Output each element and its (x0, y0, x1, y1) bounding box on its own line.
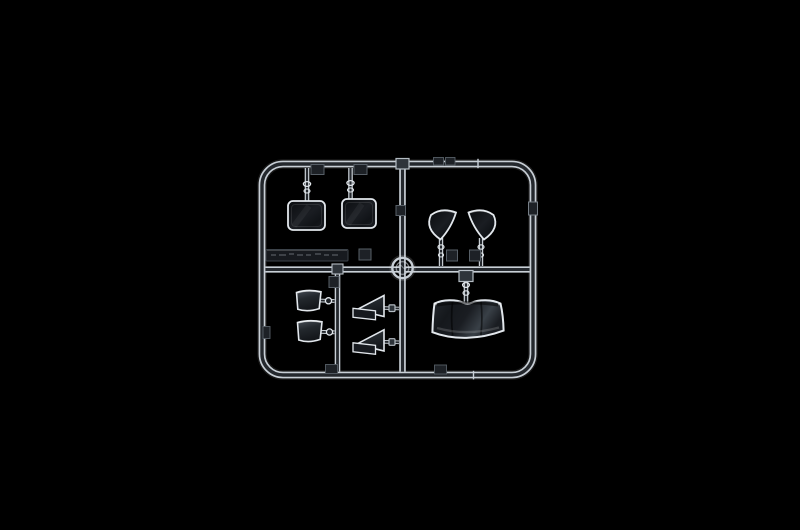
gate-tab (359, 249, 371, 260)
gate-tab (470, 250, 481, 261)
rear-window-right-assembly (342, 165, 376, 229)
gate-tab (311, 165, 324, 175)
molded-text-plate (266, 249, 371, 261)
runner-gate-tab (329, 277, 339, 288)
gate-tab (434, 158, 444, 166)
specular-glint (434, 303, 437, 306)
sprue-collar (389, 305, 395, 312)
runner-junction-plate-top (396, 159, 409, 170)
side-glass-upper (297, 290, 322, 310)
side-glass-upper-assembly (297, 290, 335, 310)
gate-tab (354, 165, 367, 175)
specular-glint (498, 303, 501, 306)
photo-canvas (0, 0, 800, 530)
rear-window-left-assembly (288, 165, 325, 231)
gate-tab (446, 158, 456, 166)
quarter-light-right (469, 210, 496, 239)
runner-junction-plate-mid (332, 264, 343, 274)
vertical-runner-inner (329, 264, 343, 372)
gate-tab (263, 327, 270, 339)
side-glass-lower (298, 321, 323, 342)
quarter-light-left-assembly (429, 210, 457, 266)
gate-tab (529, 202, 538, 215)
gate-tab (459, 271, 473, 282)
sprue-collar (325, 298, 331, 304)
runner-gate-tab (396, 206, 406, 216)
sprue-collar (389, 339, 395, 346)
sprue-collar (326, 329, 332, 335)
vent-window-upper-assembly (353, 296, 399, 320)
vertical-runner-main (396, 159, 409, 372)
quarter-light-right-assembly (469, 210, 496, 266)
windscreen-assembly (432, 271, 503, 338)
clear-parts-sprue-photo (0, 0, 800, 530)
gate-tab (326, 365, 338, 374)
gate-tab (435, 365, 447, 374)
vent-flange (353, 343, 376, 355)
side-glass-lower-assembly (298, 321, 335, 342)
gate-tab (447, 250, 458, 261)
vent-window-lower-assembly (353, 330, 399, 355)
quarter-light-left (429, 210, 456, 239)
vent-flange (353, 308, 376, 320)
